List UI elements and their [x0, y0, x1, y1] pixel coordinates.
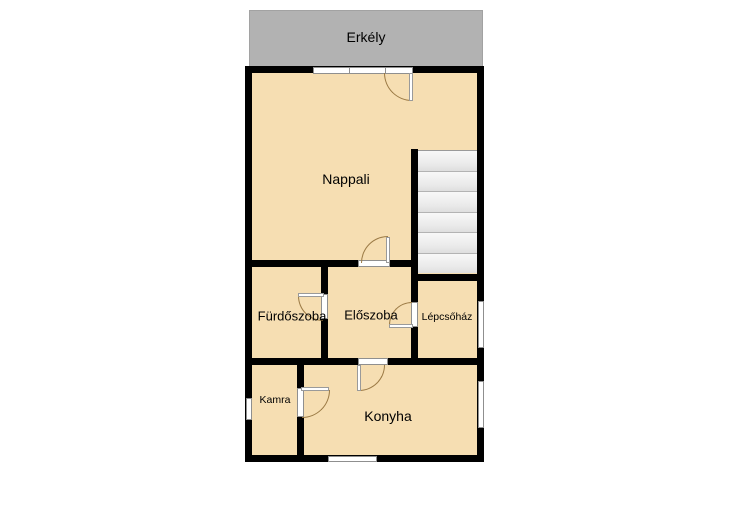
stairs	[418, 150, 477, 273]
window-konyha-right	[478, 381, 484, 428]
door-nappali-leaf	[386, 237, 390, 263]
room-label-furdoszoba: Fürdőszoba	[258, 309, 327, 324]
room-label-eloszoba: Előszoba	[344, 308, 397, 323]
window-divider	[349, 67, 350, 74]
wall-stairs-bottom	[411, 274, 477, 281]
floor-plan: Erkély	[0, 0, 730, 516]
window-lepcsohaz-right	[478, 301, 484, 348]
stair-tread	[418, 151, 477, 172]
wall-nappali-south	[252, 260, 418, 267]
door-konyha-leaf	[357, 365, 361, 391]
room-label-nappali: Nappali	[322, 171, 369, 187]
room-label-lepcsohaz: Lépcsőház	[422, 311, 473, 323]
window-kamra-left	[246, 398, 252, 420]
stair-tread	[418, 192, 477, 213]
room-label-konyha: Konyha	[364, 408, 411, 424]
stair-tread	[418, 233, 477, 254]
door-konyha-frame	[358, 358, 388, 365]
wall-stairs-left	[411, 149, 418, 281]
window-konyha-bottom	[328, 456, 377, 462]
stair-tread	[418, 213, 477, 234]
stair-tread	[418, 172, 477, 193]
door-furdoszoba-leaf	[298, 293, 324, 297]
door-balcony-leaf	[409, 73, 413, 101]
door-lepcsohaz-leaf	[389, 324, 413, 328]
balcony-label: Erkély	[347, 29, 386, 45]
stair-tread	[418, 254, 477, 274]
room-label-kamra: Kamra	[260, 394, 291, 406]
door-kamra-leaf	[301, 387, 329, 391]
